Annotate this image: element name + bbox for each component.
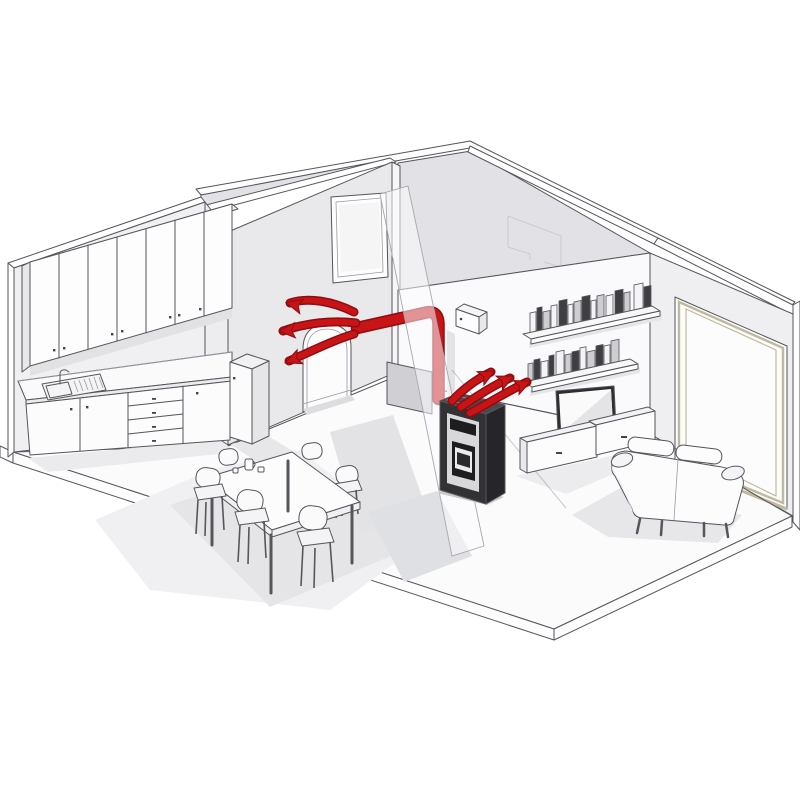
book-spine xyxy=(537,307,542,332)
book-spine xyxy=(634,283,643,311)
book-spine xyxy=(551,305,557,329)
media-right-handle xyxy=(621,436,627,438)
frame-panel xyxy=(339,202,381,272)
tall-cabinet xyxy=(230,354,269,444)
book-spine xyxy=(606,295,613,318)
book-spine xyxy=(615,289,623,315)
tall-cabinet-side xyxy=(252,361,269,444)
book-spine xyxy=(611,339,619,364)
book-spine xyxy=(624,292,630,313)
book-spine xyxy=(530,312,536,334)
book-spine xyxy=(587,350,595,369)
book-spine xyxy=(580,347,586,370)
book-spine xyxy=(541,361,548,379)
stove-side xyxy=(486,405,505,504)
tall-cabinet-handle xyxy=(233,377,235,379)
book-spine xyxy=(644,286,651,310)
cup-1 xyxy=(258,467,264,472)
book-spine xyxy=(556,350,564,375)
book-spine xyxy=(568,304,573,325)
book-spine xyxy=(534,359,540,380)
book-spine xyxy=(574,301,581,325)
vent-box-knob xyxy=(460,318,463,321)
book-spine xyxy=(591,300,596,320)
jug xyxy=(245,459,253,470)
scene-canvas xyxy=(0,0,800,800)
wall-picture-frame xyxy=(331,193,388,283)
kitchen-wall-left-band xyxy=(8,263,14,457)
media-left-cap xyxy=(520,438,527,473)
book-spine xyxy=(596,345,603,368)
book-spine xyxy=(565,354,571,373)
cabinet-side-panel xyxy=(22,262,30,372)
book-spine xyxy=(549,355,554,377)
cup-2 xyxy=(233,468,238,473)
book-spine xyxy=(572,351,579,373)
window-wall-outer-band xyxy=(793,301,800,530)
media-left-handle xyxy=(556,452,562,454)
book-spine xyxy=(597,295,604,320)
book-spine xyxy=(582,295,590,322)
tall-cabinet-front xyxy=(230,362,252,444)
isometric-room-illustration xyxy=(0,0,800,800)
book-spine xyxy=(559,299,567,327)
book-spine xyxy=(604,345,610,365)
